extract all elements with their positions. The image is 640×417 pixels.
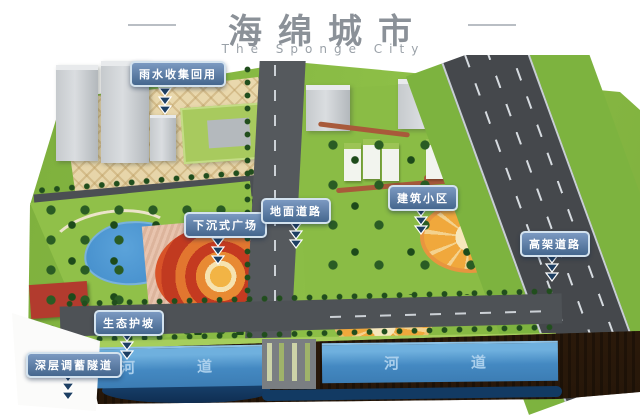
sponge-city-poster: { "title": { "zh": "海绵城市", "en": "The Sp… <box>0 0 640 417</box>
callout-sunken-plaza: 下沉式广场 <box>184 212 267 238</box>
down-arrows-icon <box>544 254 560 282</box>
river-label: 河道 <box>384 351 558 374</box>
callout-eco-slope: 生态护坡 <box>94 310 164 336</box>
river-bridge <box>262 339 316 389</box>
callout-ground-road: 地面道路 <box>261 198 331 224</box>
office-tower-wing <box>150 115 176 161</box>
down-arrows-icon <box>157 87 173 115</box>
river-label: 河道 <box>120 354 274 378</box>
bridge-pillar <box>292 343 297 381</box>
city-model-scene: 河道 河道 雨水收集回用 下沉式广场 地面道路 <box>0 55 640 417</box>
bridge-pillar <box>305 343 310 381</box>
page-subtitle: The Sponge City <box>0 42 640 56</box>
title-divider-right <box>468 24 516 26</box>
down-arrows-icon <box>210 237 226 265</box>
bridge-pillar <box>267 343 272 381</box>
callout-building-community: 建筑小区 <box>388 185 458 211</box>
office-tower <box>56 65 98 161</box>
down-arrows-icon <box>288 221 304 249</box>
down-arrows-icon <box>413 207 429 235</box>
callout-elevated-road: 高架道路 <box>520 231 590 257</box>
callout-rainwater-reuse: 雨水收集回用 <box>130 61 226 87</box>
bridge-pillar <box>279 343 284 381</box>
river-right: 河道 <box>322 341 558 383</box>
title-block: 海绵城市 The Sponge City <box>0 0 640 56</box>
callout-deep-storage-tunnel: 深层调蓄隧道 <box>26 352 122 378</box>
